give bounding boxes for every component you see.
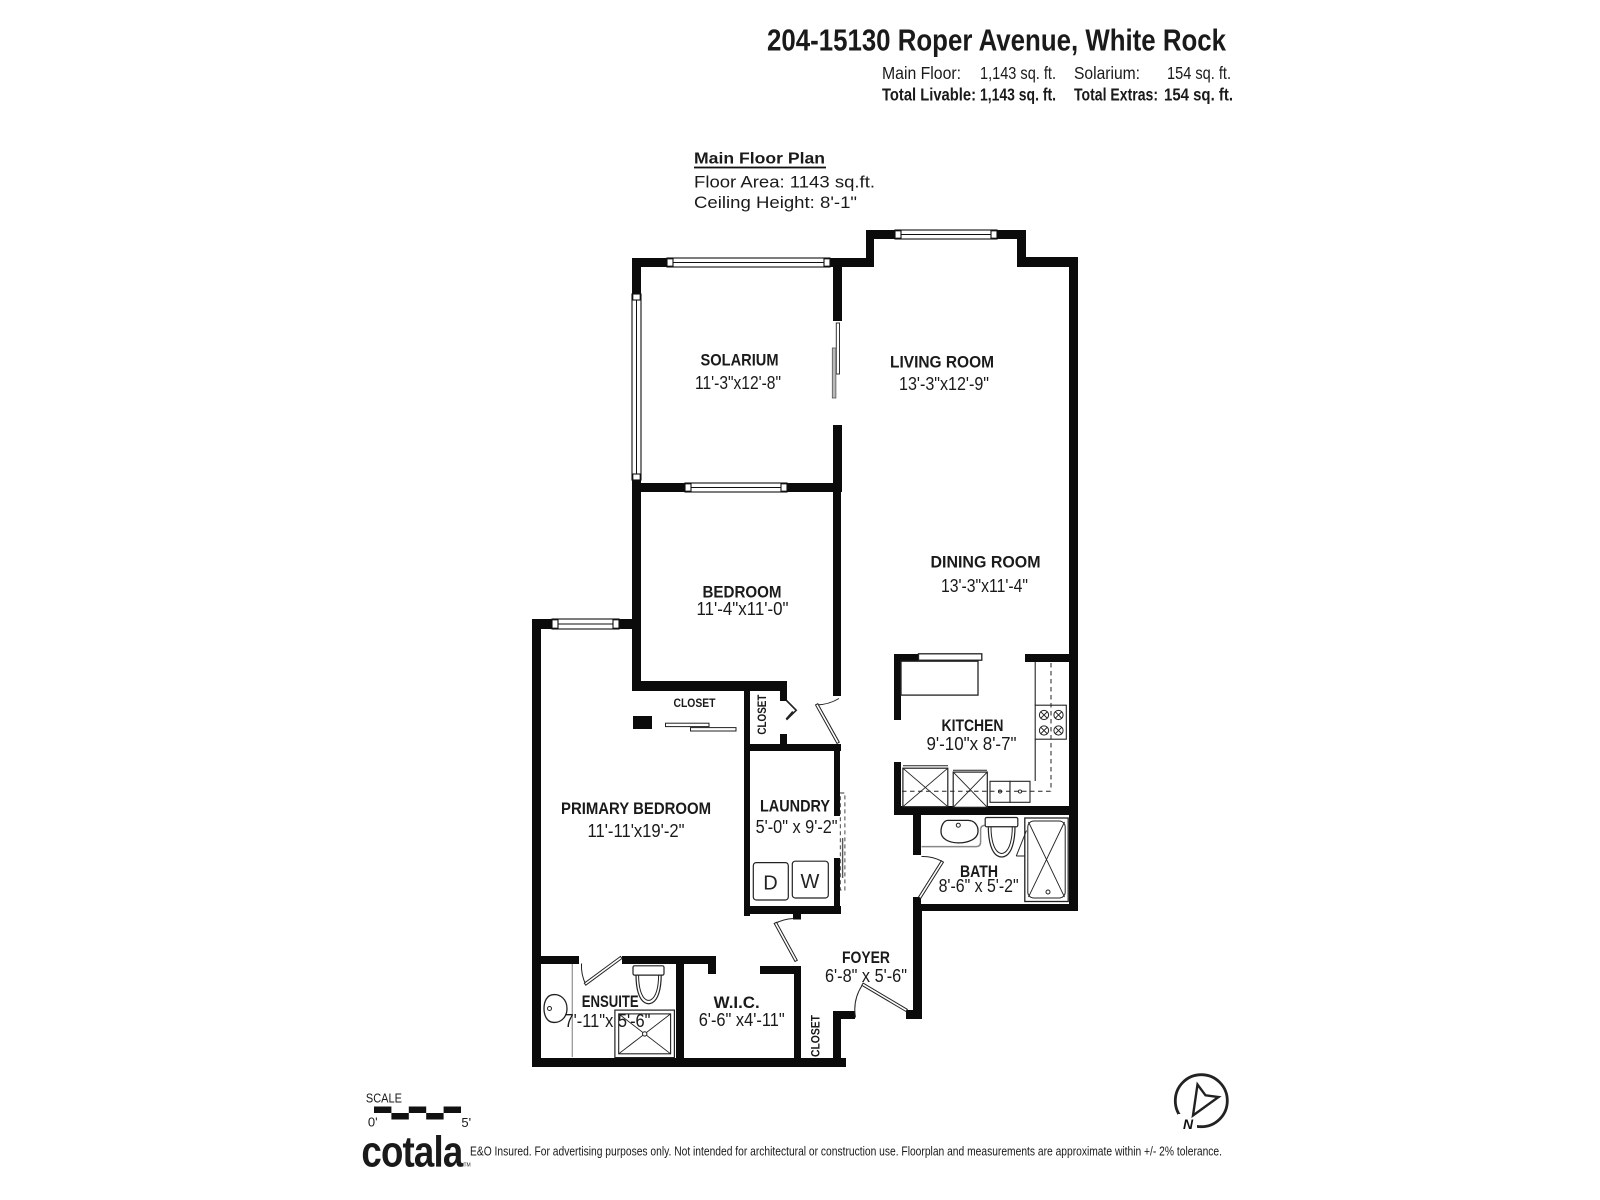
svg-text:5'-0" x 9'-2": 5'-0" x 9'-2" bbox=[756, 816, 838, 837]
svg-text:1,143 sq. ft.: 1,143 sq. ft. bbox=[980, 85, 1056, 105]
svg-text:5': 5' bbox=[461, 1115, 471, 1130]
svg-text:154 sq. ft.: 154 sq. ft. bbox=[1167, 63, 1231, 83]
svg-text:11'-11'x19'-2": 11'-11'x19'-2" bbox=[588, 820, 685, 841]
svg-text:SOLARIUM: SOLARIUM bbox=[701, 352, 779, 370]
svg-text:ENSUITE: ENSUITE bbox=[582, 993, 639, 1011]
svg-text:9'-10"x 8'-7": 9'-10"x 8'-7" bbox=[927, 733, 1017, 754]
svg-text:Total Extras:: Total Extras: bbox=[1074, 85, 1158, 105]
svg-text:LIVING ROOM: LIVING ROOM bbox=[890, 354, 994, 372]
svg-text:PRIMARY BEDROOM: PRIMARY BEDROOM bbox=[561, 800, 711, 818]
svg-text:1,143 sq. ft.: 1,143 sq. ft. bbox=[980, 63, 1056, 83]
svg-text:cotala: cotala bbox=[361, 1128, 463, 1177]
svg-text:Solarium:: Solarium: bbox=[1074, 63, 1140, 83]
svg-text:204-15130 Roper Avenue, White: 204-15130 Roper Avenue, White Rock bbox=[767, 23, 1227, 58]
svg-text:Floor Area: 1143 sq.ft.: Floor Area: 1143 sq.ft. bbox=[694, 174, 875, 192]
svg-text:E&O Insured. For advertising p: E&O Insured. For advertising purposes on… bbox=[470, 1144, 1222, 1159]
svg-text:8'-6" x 5'-2": 8'-6" x 5'-2" bbox=[939, 875, 1019, 896]
svg-text:DINING ROOM: DINING ROOM bbox=[931, 554, 1041, 572]
svg-text:13'-3"x12'-9": 13'-3"x12'-9" bbox=[899, 373, 989, 394]
svg-text:6'-8" x 5'-6": 6'-8" x 5'-6" bbox=[825, 965, 907, 986]
svg-text:13'-3"x11'-4": 13'-3"x11'-4" bbox=[941, 575, 1028, 596]
svg-text:LAUNDRY: LAUNDRY bbox=[760, 798, 830, 816]
svg-text:W: W bbox=[801, 871, 820, 893]
svg-text:154 sq. ft.: 154 sq. ft. bbox=[1164, 85, 1233, 105]
svg-text:7'-11"x 5'-6": 7'-11"x 5'-6" bbox=[565, 1010, 651, 1031]
svg-text:CLOSET: CLOSET bbox=[674, 698, 716, 710]
svg-text:Main Floor Plan: Main Floor Plan bbox=[694, 150, 825, 167]
svg-text:CLOSET: CLOSET bbox=[757, 695, 769, 735]
svg-text:CLOSET: CLOSET bbox=[811, 1015, 823, 1057]
svg-text:N: N bbox=[1183, 1116, 1194, 1132]
svg-text:11'-3"x12'-8": 11'-3"x12'-8" bbox=[695, 372, 781, 393]
svg-text:TM: TM bbox=[464, 1163, 471, 1169]
svg-text:Ceiling Height: 8'-1": Ceiling Height: 8'-1" bbox=[694, 194, 857, 212]
svg-text:11'-4"x11'-0": 11'-4"x11'-0" bbox=[697, 598, 789, 619]
svg-text:D: D bbox=[763, 873, 777, 895]
svg-text:SCALE: SCALE bbox=[366, 1091, 402, 1106]
svg-text:6'-6" x4'-11": 6'-6" x4'-11" bbox=[699, 1009, 785, 1030]
svg-text:Main Floor:: Main Floor: bbox=[882, 63, 961, 83]
svg-text:Total Livable:: Total Livable: bbox=[882, 85, 976, 105]
